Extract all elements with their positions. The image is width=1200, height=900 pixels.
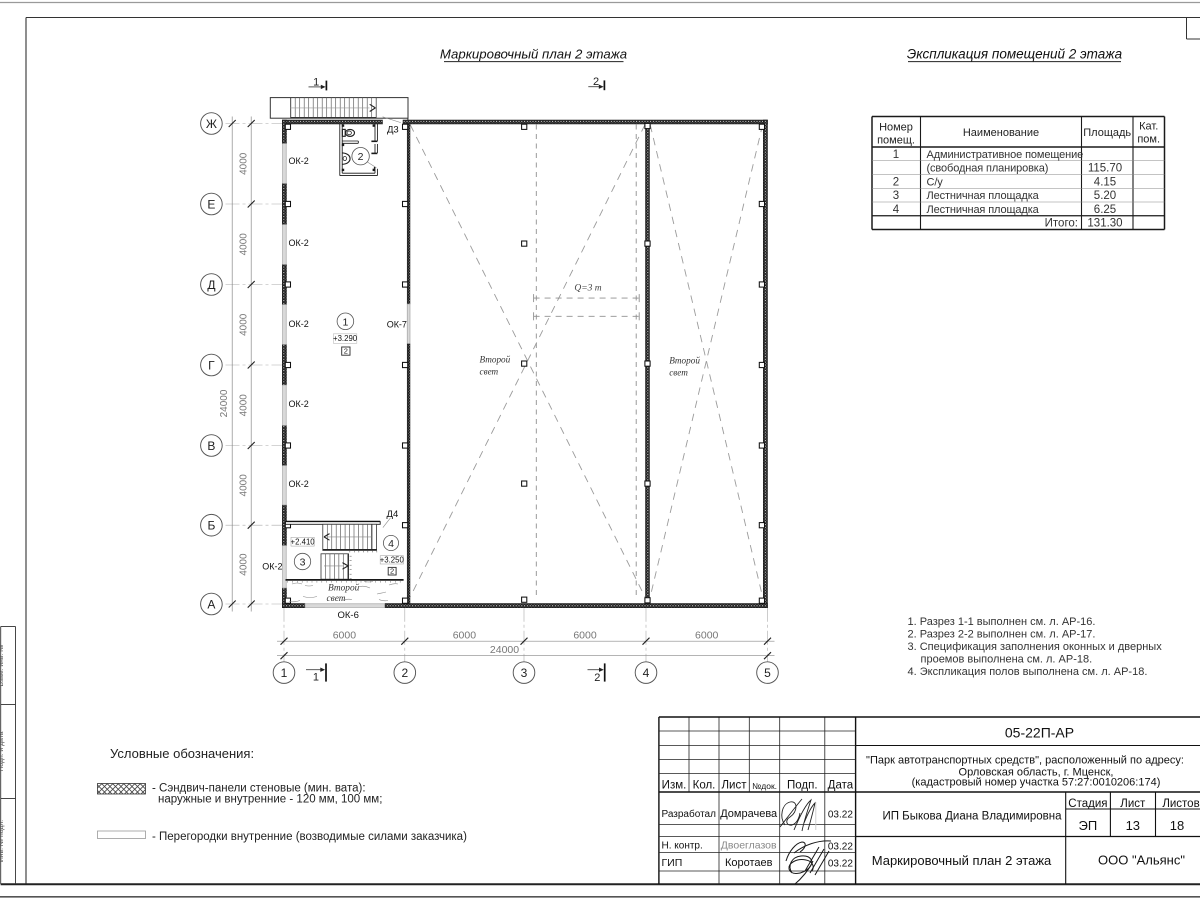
svg-text:ОК-2: ОК-2: [289, 156, 309, 166]
svg-text:свет: свет: [480, 366, 499, 376]
svg-text:(свободная планировка): (свободная планировка): [927, 163, 1049, 175]
svg-text:ОК-2: ОК-2: [262, 561, 282, 571]
svg-text:3: 3: [521, 666, 528, 680]
svg-text:свет: свет: [669, 367, 688, 377]
svg-text:Лист: Лист: [1120, 798, 1146, 810]
svg-text:(кадастровый номер участка 57:: (кадастровый номер участка 57:27:0010206…: [912, 777, 1161, 789]
svg-text:Н. контр.: Н. контр.: [662, 841, 703, 852]
svg-text:- Сэндвич-панели стеновые (мин: - Сэндвич-панели стеновые (мин. вата):: [152, 782, 366, 794]
svg-text:6000: 6000: [333, 630, 357, 642]
svg-text:ИП Быкова Диана Владимировна: ИП Быкова Диана Владимировна: [882, 811, 1062, 823]
svg-text:Е: Е: [207, 197, 215, 211]
svg-text:проемов выполнена см. л. АР-18: проемов выполнена см. л. АР-18.: [921, 653, 1093, 665]
svg-text:ОК-7: ОК-7: [387, 320, 407, 330]
svg-text:3: 3: [893, 190, 899, 202]
svg-text:2: 2: [401, 666, 408, 680]
svg-text:+2.410: +2.410: [291, 537, 316, 546]
svg-text:ООО "Альянс": ООО "Альянс": [1098, 852, 1185, 867]
svg-text:Площадь: Площадь: [1083, 127, 1131, 139]
svg-text:Домрачева: Домрачева: [720, 808, 778, 820]
svg-text:Маркировочный план 2 этажа: Маркировочный план 2 этажа: [872, 853, 1052, 868]
svg-text:С/у: С/у: [927, 176, 944, 188]
svg-text:4000: 4000: [239, 233, 250, 256]
svg-text:1: 1: [313, 671, 319, 683]
svg-text:2: 2: [344, 347, 348, 356]
svg-text:Разработал: Разработал: [662, 808, 717, 820]
svg-text:Второй: Второй: [328, 583, 360, 594]
svg-text:131.30: 131.30: [1087, 218, 1122, 230]
svg-text:Двоеглазов: Двоеглазов: [721, 840, 777, 852]
svg-text:А: А: [207, 597, 215, 611]
svg-text:Инв. № подл.: Инв. № подл.: [0, 820, 5, 862]
svg-text:24000: 24000: [490, 644, 519, 656]
svg-text:Q=3 т: Q=3 т: [574, 284, 601, 294]
svg-text:Д: Д: [207, 278, 215, 292]
svg-text:ОК-2: ОК-2: [289, 319, 309, 329]
svg-text:1: 1: [342, 316, 348, 328]
svg-text:+3.250: +3.250: [380, 555, 405, 564]
svg-text:пом.: пом.: [1137, 133, 1160, 145]
svg-text:2: 2: [390, 567, 394, 576]
svg-text:Изм.: Изм.: [662, 779, 687, 791]
svg-text:ГИП: ГИП: [662, 857, 683, 869]
svg-text:Подп. и дата: Подп. и дата: [0, 731, 5, 771]
svg-text:ОК-2: ОК-2: [289, 479, 309, 489]
svg-text:Итого:: Итого:: [1045, 218, 1078, 230]
svg-text:4000: 4000: [239, 152, 250, 175]
svg-text:1. Разрез 1-1 выполнен см. л.: 1. Разрез 1-1 выполнен см. л. АР-16.: [908, 616, 1096, 628]
svg-text:Листов: Листов: [1162, 798, 1199, 810]
svg-text:6000: 6000: [453, 630, 477, 642]
svg-text:Лестничная площадка: Лестничная площадка: [927, 190, 1040, 202]
svg-text:Д3: Д3: [387, 125, 399, 136]
svg-text:- Перегородки внутренние (возв: - Перегородки внутренние (возводимые сил…: [152, 831, 467, 843]
svg-text:Подп.: Подп.: [787, 779, 818, 791]
svg-text:ЭП: ЭП: [1079, 818, 1098, 833]
svg-text:115.70: 115.70: [1088, 163, 1122, 175]
svg-text:5.20: 5.20: [1094, 190, 1116, 202]
svg-text:Взам. инв. №: Взам. инв. №: [0, 644, 5, 686]
svg-text:ОК-2: ОК-2: [289, 399, 309, 409]
svg-text:Кат.: Кат.: [1139, 121, 1158, 133]
svg-text:Коротаев: Коротаев: [725, 857, 773, 869]
svg-text:В: В: [207, 439, 215, 453]
svg-text:помещ.: помещ.: [877, 134, 915, 146]
svg-text:2: 2: [893, 176, 899, 188]
svg-text:Б: Б: [207, 519, 215, 533]
svg-text:6.25: 6.25: [1094, 204, 1116, 216]
svg-text:свет: свет: [327, 594, 346, 604]
svg-text:"Парк автотранспортных средств: "Парк автотранспортных средств", располо…: [866, 755, 1184, 767]
svg-text:6000: 6000: [695, 630, 719, 642]
svg-text:24000: 24000: [219, 389, 230, 417]
svg-text:ОК-2: ОК-2: [289, 238, 309, 248]
svg-text:4000: 4000: [239, 313, 250, 336]
svg-text:Ж: Ж: [206, 117, 217, 131]
svg-text:наружные и внутренние - 120 мм: наружные и внутренние - 120 мм, 100 мм;: [158, 794, 382, 806]
svg-text:03.22: 03.22: [828, 810, 853, 821]
svg-text:4000: 4000: [239, 474, 250, 497]
svg-text:Д4: Д4: [387, 509, 399, 520]
svg-text:3. Спецификация заполнения око: 3. Спецификация заполнения оконных и две…: [908, 641, 1163, 653]
svg-text:Условные обозначения:: Условные обозначения:: [110, 746, 254, 761]
svg-text:4: 4: [388, 538, 394, 550]
svg-text:5: 5: [764, 666, 771, 680]
svg-text:Лестничная площадка: Лестничная площадка: [927, 204, 1040, 216]
svg-text:Экспликация помещений 2 этажа: Экспликация помещений 2 этажа: [907, 47, 1123, 62]
svg-text:2. Разрез 2-2 выполнен см. л.: 2. Разрез 2-2 выполнен см. л. АР-17.: [908, 628, 1096, 640]
svg-text:Административное помещение: Административное помещение: [927, 149, 1084, 161]
svg-text:05-22П-АР: 05-22П-АР: [1005, 725, 1074, 741]
svg-text:Лист: Лист: [722, 779, 748, 791]
svg-text:Дата: Дата: [828, 779, 854, 791]
svg-text:2: 2: [358, 151, 364, 163]
svg-text:1: 1: [281, 666, 288, 680]
svg-text:4: 4: [893, 204, 900, 216]
svg-text:3: 3: [300, 557, 306, 569]
svg-text:4.15: 4.15: [1094, 176, 1116, 188]
svg-text:1: 1: [893, 149, 899, 161]
svg-text:4000: 4000: [239, 553, 250, 576]
svg-text:№док.: №док.: [752, 781, 777, 791]
svg-text:4. Экспликация полов выполнена: 4. Экспликация полов выполнена см. л. АР…: [908, 666, 1148, 678]
svg-text:4: 4: [643, 666, 650, 680]
svg-text:Стадия: Стадия: [1068, 798, 1107, 810]
svg-text:6000: 6000: [573, 630, 597, 642]
svg-text:18: 18: [1170, 818, 1184, 833]
svg-text:13: 13: [1126, 818, 1140, 833]
svg-text:03.22: 03.22: [828, 858, 853, 869]
svg-text:Наименование: Наименование: [963, 127, 1039, 139]
svg-text:ОК-6: ОК-6: [338, 610, 359, 621]
svg-text:Второй: Второй: [669, 355, 700, 365]
svg-text:2: 2: [594, 672, 600, 684]
svg-text:4000: 4000: [239, 394, 250, 417]
svg-text:Маркировочный план 2 этажа: Маркировочный план 2 этажа: [440, 47, 627, 62]
svg-text:Кол.: Кол.: [693, 779, 716, 791]
svg-text:Второй: Второй: [480, 354, 511, 364]
svg-text:+3.290: +3.290: [333, 334, 358, 343]
svg-text:03.22: 03.22: [828, 841, 853, 852]
svg-text:Г: Г: [208, 358, 215, 372]
svg-text:Номер: Номер: [879, 122, 913, 134]
